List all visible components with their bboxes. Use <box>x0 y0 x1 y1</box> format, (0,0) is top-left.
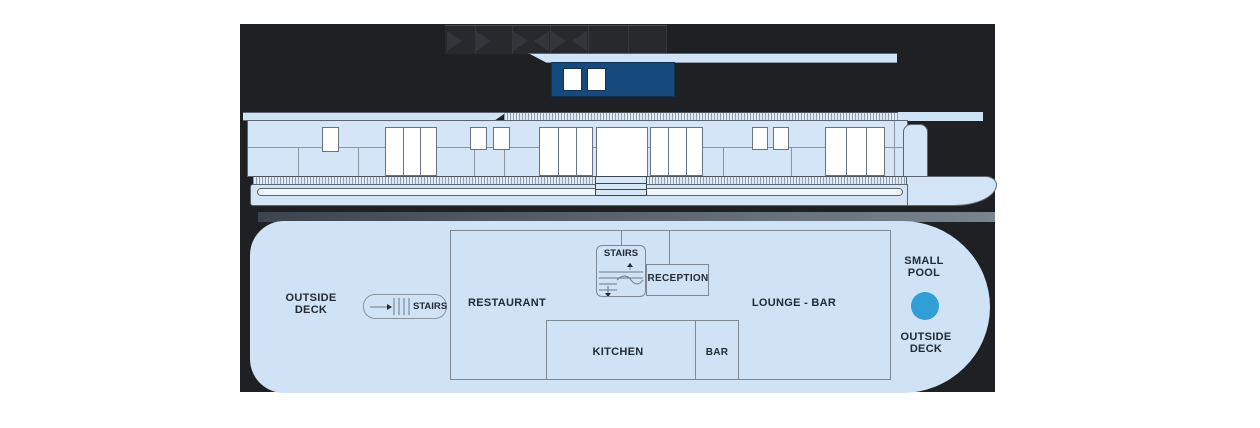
restaurant-label: RESTAURANT <box>468 297 546 309</box>
cabin-mullion <box>723 147 724 177</box>
main-roof-bow-overhang <box>898 112 983 121</box>
interior-wall <box>669 230 670 264</box>
window-divider <box>420 128 421 175</box>
deck-chair-icon <box>476 31 491 51</box>
window-divider <box>576 128 577 175</box>
wheelhouse-window <box>587 68 606 91</box>
cabin-mullion <box>358 147 359 177</box>
window-divider <box>686 128 687 175</box>
cabin-mullion <box>298 147 299 177</box>
cabin-window <box>493 127 510 150</box>
center-stairs-label: STAIRS <box>597 248 645 259</box>
kitchen-label: KITCHEN <box>593 346 644 358</box>
window-divider <box>866 128 867 175</box>
band-divider <box>588 26 589 54</box>
interior-wall <box>621 230 622 245</box>
cabin-window <box>470 127 487 150</box>
band-divider <box>666 26 667 54</box>
outside-deck-right-label: OUTSIDEDECK <box>901 331 952 355</box>
cabin-window-group <box>825 127 885 176</box>
small-pool-label: SMALLPOOL <box>904 255 943 279</box>
outside-deck-left-label: OUTSIDEDECK <box>286 292 337 316</box>
cabin-window-group <box>539 127 593 176</box>
bow-door-frame <box>903 124 928 177</box>
cabin-front-wall <box>894 121 895 177</box>
wheelhouse-window <box>563 68 582 91</box>
ship-deck-plan-figure: STAIRS RECEPTION KITCHEN BAR OUTSIDEDECK <box>0 0 1260 428</box>
deck-chair-icon <box>447 31 462 51</box>
cabin-window-group <box>385 127 437 176</box>
deck-chair-icon <box>534 31 549 51</box>
window-divider <box>846 128 847 175</box>
cabin-window <box>773 127 789 150</box>
left-stairs-label: STAIRS <box>413 301 446 312</box>
deck-chair-icon <box>551 31 566 51</box>
wheelhouse <box>551 62 675 97</box>
window-divider <box>558 128 559 175</box>
hull-stripe <box>257 188 903 196</box>
reception-label: RECEPTION <box>647 273 708 285</box>
cabin-mullion <box>504 147 505 177</box>
small-pool-icon <box>911 292 939 320</box>
cabin-window <box>322 127 339 152</box>
band-divider <box>628 26 629 54</box>
left-stairs: STAIRS <box>363 294 447 319</box>
deck-chair-icon <box>572 31 587 51</box>
window-divider <box>668 128 669 175</box>
cabin-window <box>752 127 768 150</box>
cabin-mullion <box>474 147 475 177</box>
stairs-treads-icon <box>364 295 412 318</box>
sun-deck-chairs-band <box>445 25 667 54</box>
entry-door-glass <box>596 127 648 177</box>
cabin-mullion <box>791 147 792 177</box>
window-divider <box>403 128 404 175</box>
stairs-treads-icon <box>597 260 645 296</box>
center-stairs: STAIRS <box>596 245 646 297</box>
deck-chair-icon <box>513 31 528 51</box>
boarding-steps <box>595 176 647 196</box>
lounge-bar-label: LOUNGE - BAR <box>752 297 836 309</box>
bar-label: BAR <box>706 347 729 359</box>
cabin-window-group <box>650 127 703 176</box>
